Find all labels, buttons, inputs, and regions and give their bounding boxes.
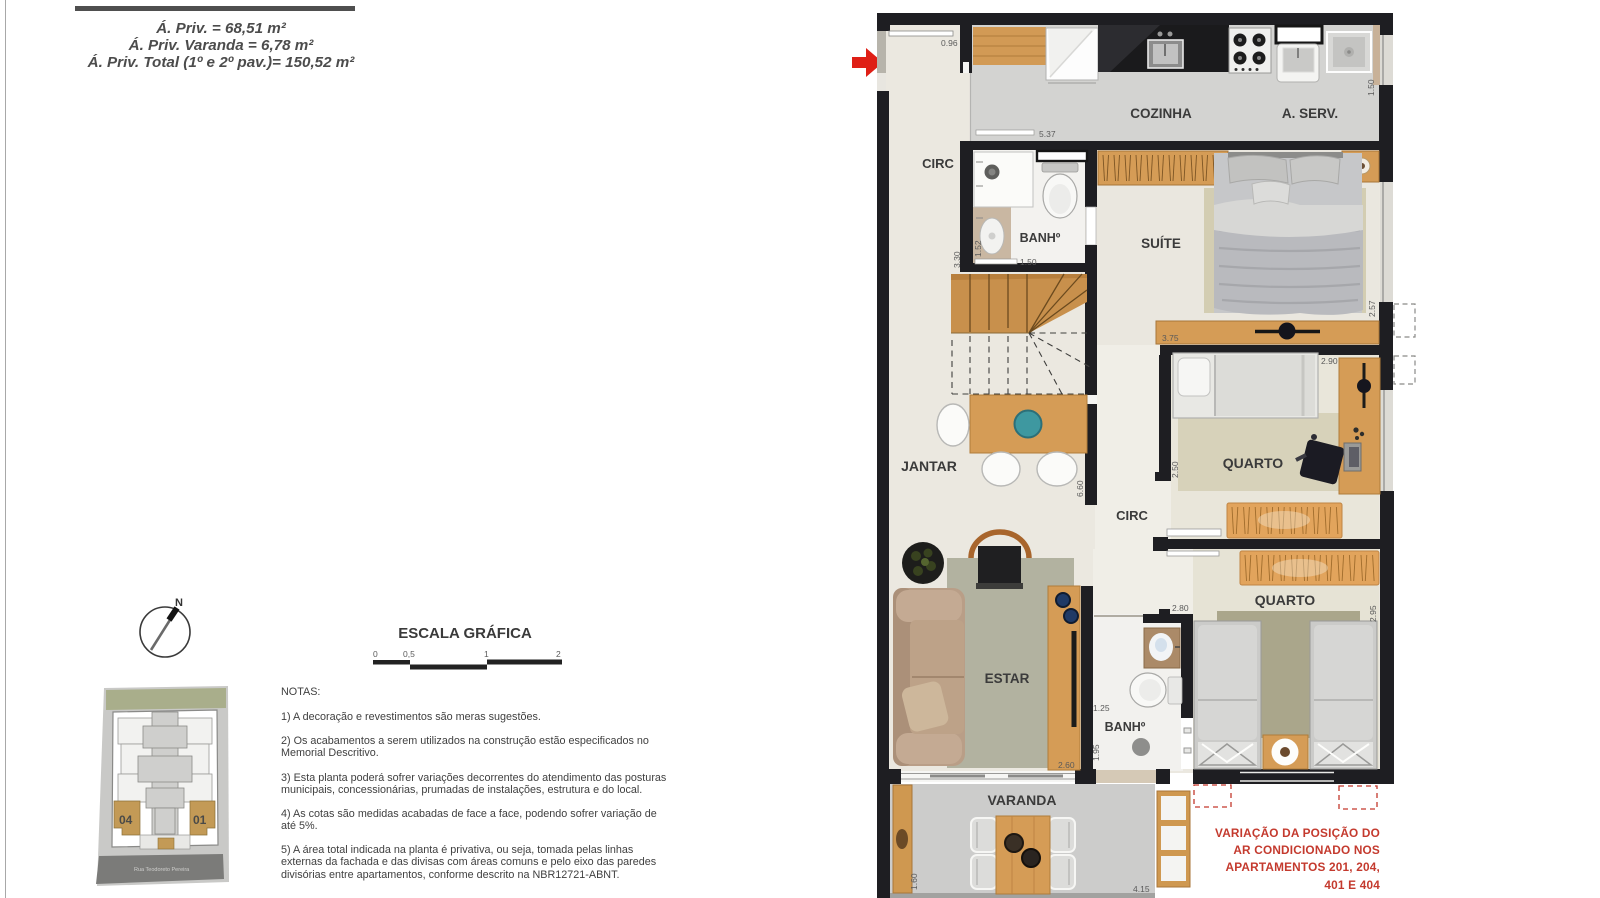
svg-text:N: N xyxy=(175,597,183,609)
svg-text:1.50: 1.50 xyxy=(1366,79,1376,96)
svg-text:BANHº: BANHº xyxy=(1020,231,1061,245)
svg-text:0.96: 0.96 xyxy=(941,38,958,48)
svg-text:2: 2 xyxy=(556,649,561,659)
svg-text:1.25: 1.25 xyxy=(1093,703,1110,713)
svg-text:1: 1 xyxy=(484,649,489,659)
svg-text:0,5: 0,5 xyxy=(403,649,415,659)
svg-text:BANHº: BANHº xyxy=(1105,720,1146,734)
svg-text:A. SERV.: A. SERV. xyxy=(1282,106,1338,121)
svg-text:04: 04 xyxy=(119,813,133,827)
svg-text:1.52: 1.52 xyxy=(973,240,983,257)
svg-text:JANTAR: JANTAR xyxy=(901,458,957,474)
svg-text:CIRC: CIRC xyxy=(1116,508,1148,523)
svg-text:2.60: 2.60 xyxy=(1058,760,1075,770)
svg-text:Rua Teodoreto Pereira: Rua Teodoreto Pereira xyxy=(134,867,190,873)
svg-text:2.90: 2.90 xyxy=(1321,356,1338,366)
svg-text:CIRC: CIRC xyxy=(922,156,954,171)
svg-text:3.30: 3.30 xyxy=(952,251,962,268)
svg-text:QUARTO: QUARTO xyxy=(1255,592,1316,608)
svg-text:1.60: 1.60 xyxy=(909,873,919,890)
svg-text:ESCALA GRÁFICA: ESCALA GRÁFICA xyxy=(398,625,532,642)
svg-text:VARANDA: VARANDA xyxy=(988,792,1057,808)
svg-text:1.95: 1.95 xyxy=(1091,744,1101,761)
svg-text:SUÍTE: SUÍTE xyxy=(1141,236,1181,251)
svg-text:2.95: 2.95 xyxy=(1368,605,1378,622)
svg-text:6.60: 6.60 xyxy=(1075,480,1085,497)
svg-text:ESTAR: ESTAR xyxy=(985,671,1030,686)
svg-text:01: 01 xyxy=(193,813,207,827)
svg-text:5.37: 5.37 xyxy=(1039,129,1056,139)
svg-text:2.57: 2.57 xyxy=(1367,300,1377,317)
svg-text:3.75: 3.75 xyxy=(1162,333,1179,343)
svg-text:1.50: 1.50 xyxy=(1020,257,1037,267)
svg-text:2.50: 2.50 xyxy=(1170,461,1180,478)
svg-text:QUARTO: QUARTO xyxy=(1223,455,1284,471)
svg-text:2.80: 2.80 xyxy=(1172,603,1189,613)
svg-text:COZINHA: COZINHA xyxy=(1130,106,1192,121)
svg-text:4.15: 4.15 xyxy=(1133,884,1150,894)
svg-text:0: 0 xyxy=(373,649,378,659)
